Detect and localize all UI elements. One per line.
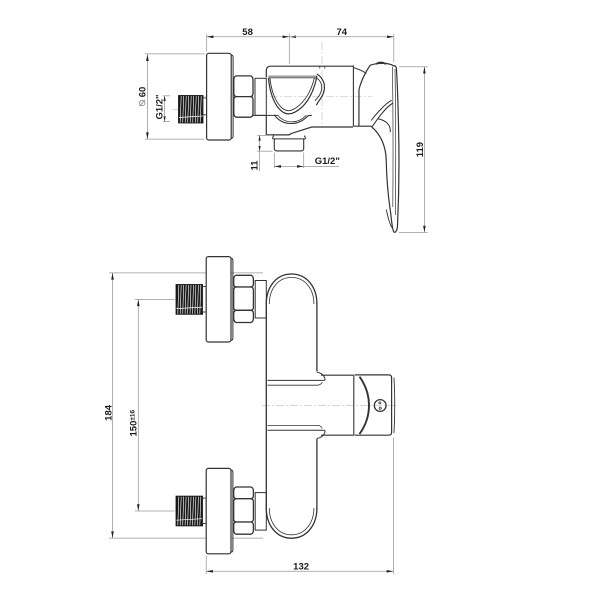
svg-text:11: 11 xyxy=(250,160,261,171)
svg-text:132: 132 xyxy=(293,561,309,572)
svg-text:58: 58 xyxy=(242,27,253,38)
svg-text:184: 184 xyxy=(104,404,115,421)
svg-text:119: 119 xyxy=(415,142,426,157)
svg-text:60: 60 xyxy=(137,87,148,98)
svg-text:74: 74 xyxy=(337,27,348,38)
svg-text:G1/2": G1/2" xyxy=(315,156,340,167)
svg-text:G1/2": G1/2" xyxy=(155,94,166,119)
